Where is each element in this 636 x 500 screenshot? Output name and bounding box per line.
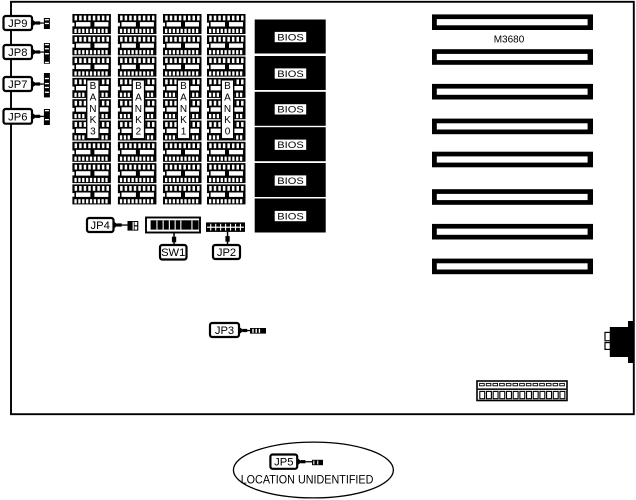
svg-text:B: B <box>224 81 231 92</box>
svg-text:M3680: M3680 <box>494 35 525 46</box>
svg-text:BIOS: BIOS <box>277 211 304 221</box>
svg-text:A: A <box>90 93 97 104</box>
svg-text:JP8: JP8 <box>8 47 27 59</box>
svg-text:N: N <box>180 104 187 115</box>
svg-text:B: B <box>90 81 97 92</box>
svg-text:A: A <box>180 93 187 104</box>
svg-text:A: A <box>224 93 231 104</box>
svg-text:SW1: SW1 <box>161 247 185 259</box>
svg-text:B: B <box>135 81 142 92</box>
svg-text:JP9: JP9 <box>8 18 27 30</box>
svg-text:K: K <box>224 115 231 126</box>
svg-text:1: 1 <box>181 126 187 137</box>
svg-text:JP5: JP5 <box>274 457 293 469</box>
svg-text:K: K <box>135 115 142 126</box>
svg-text:JP3: JP3 <box>215 325 234 337</box>
svg-text:BIOS: BIOS <box>277 176 304 186</box>
svg-text:JP4: JP4 <box>91 220 110 232</box>
svg-text:N: N <box>89 104 96 115</box>
svg-text:JP2: JP2 <box>217 247 236 259</box>
svg-text:N: N <box>135 104 142 115</box>
svg-text:BIOS: BIOS <box>277 140 304 150</box>
svg-text:LOCATION UNIDENTIFIED: LOCATION UNIDENTIFIED <box>241 472 374 486</box>
svg-text:BIOS: BIOS <box>277 69 304 79</box>
svg-text:N: N <box>224 104 231 115</box>
svg-text:B: B <box>180 81 187 92</box>
svg-text:0: 0 <box>225 126 231 137</box>
svg-text:A: A <box>135 93 142 104</box>
svg-text:JP6: JP6 <box>8 111 27 123</box>
svg-text:2: 2 <box>136 126 142 137</box>
svg-text:K: K <box>180 115 187 126</box>
svg-text:BIOS: BIOS <box>277 32 304 42</box>
svg-text:3: 3 <box>90 126 96 137</box>
svg-text:BIOS: BIOS <box>277 105 304 115</box>
svg-text:K: K <box>90 115 97 126</box>
svg-text:JP7: JP7 <box>8 79 27 91</box>
